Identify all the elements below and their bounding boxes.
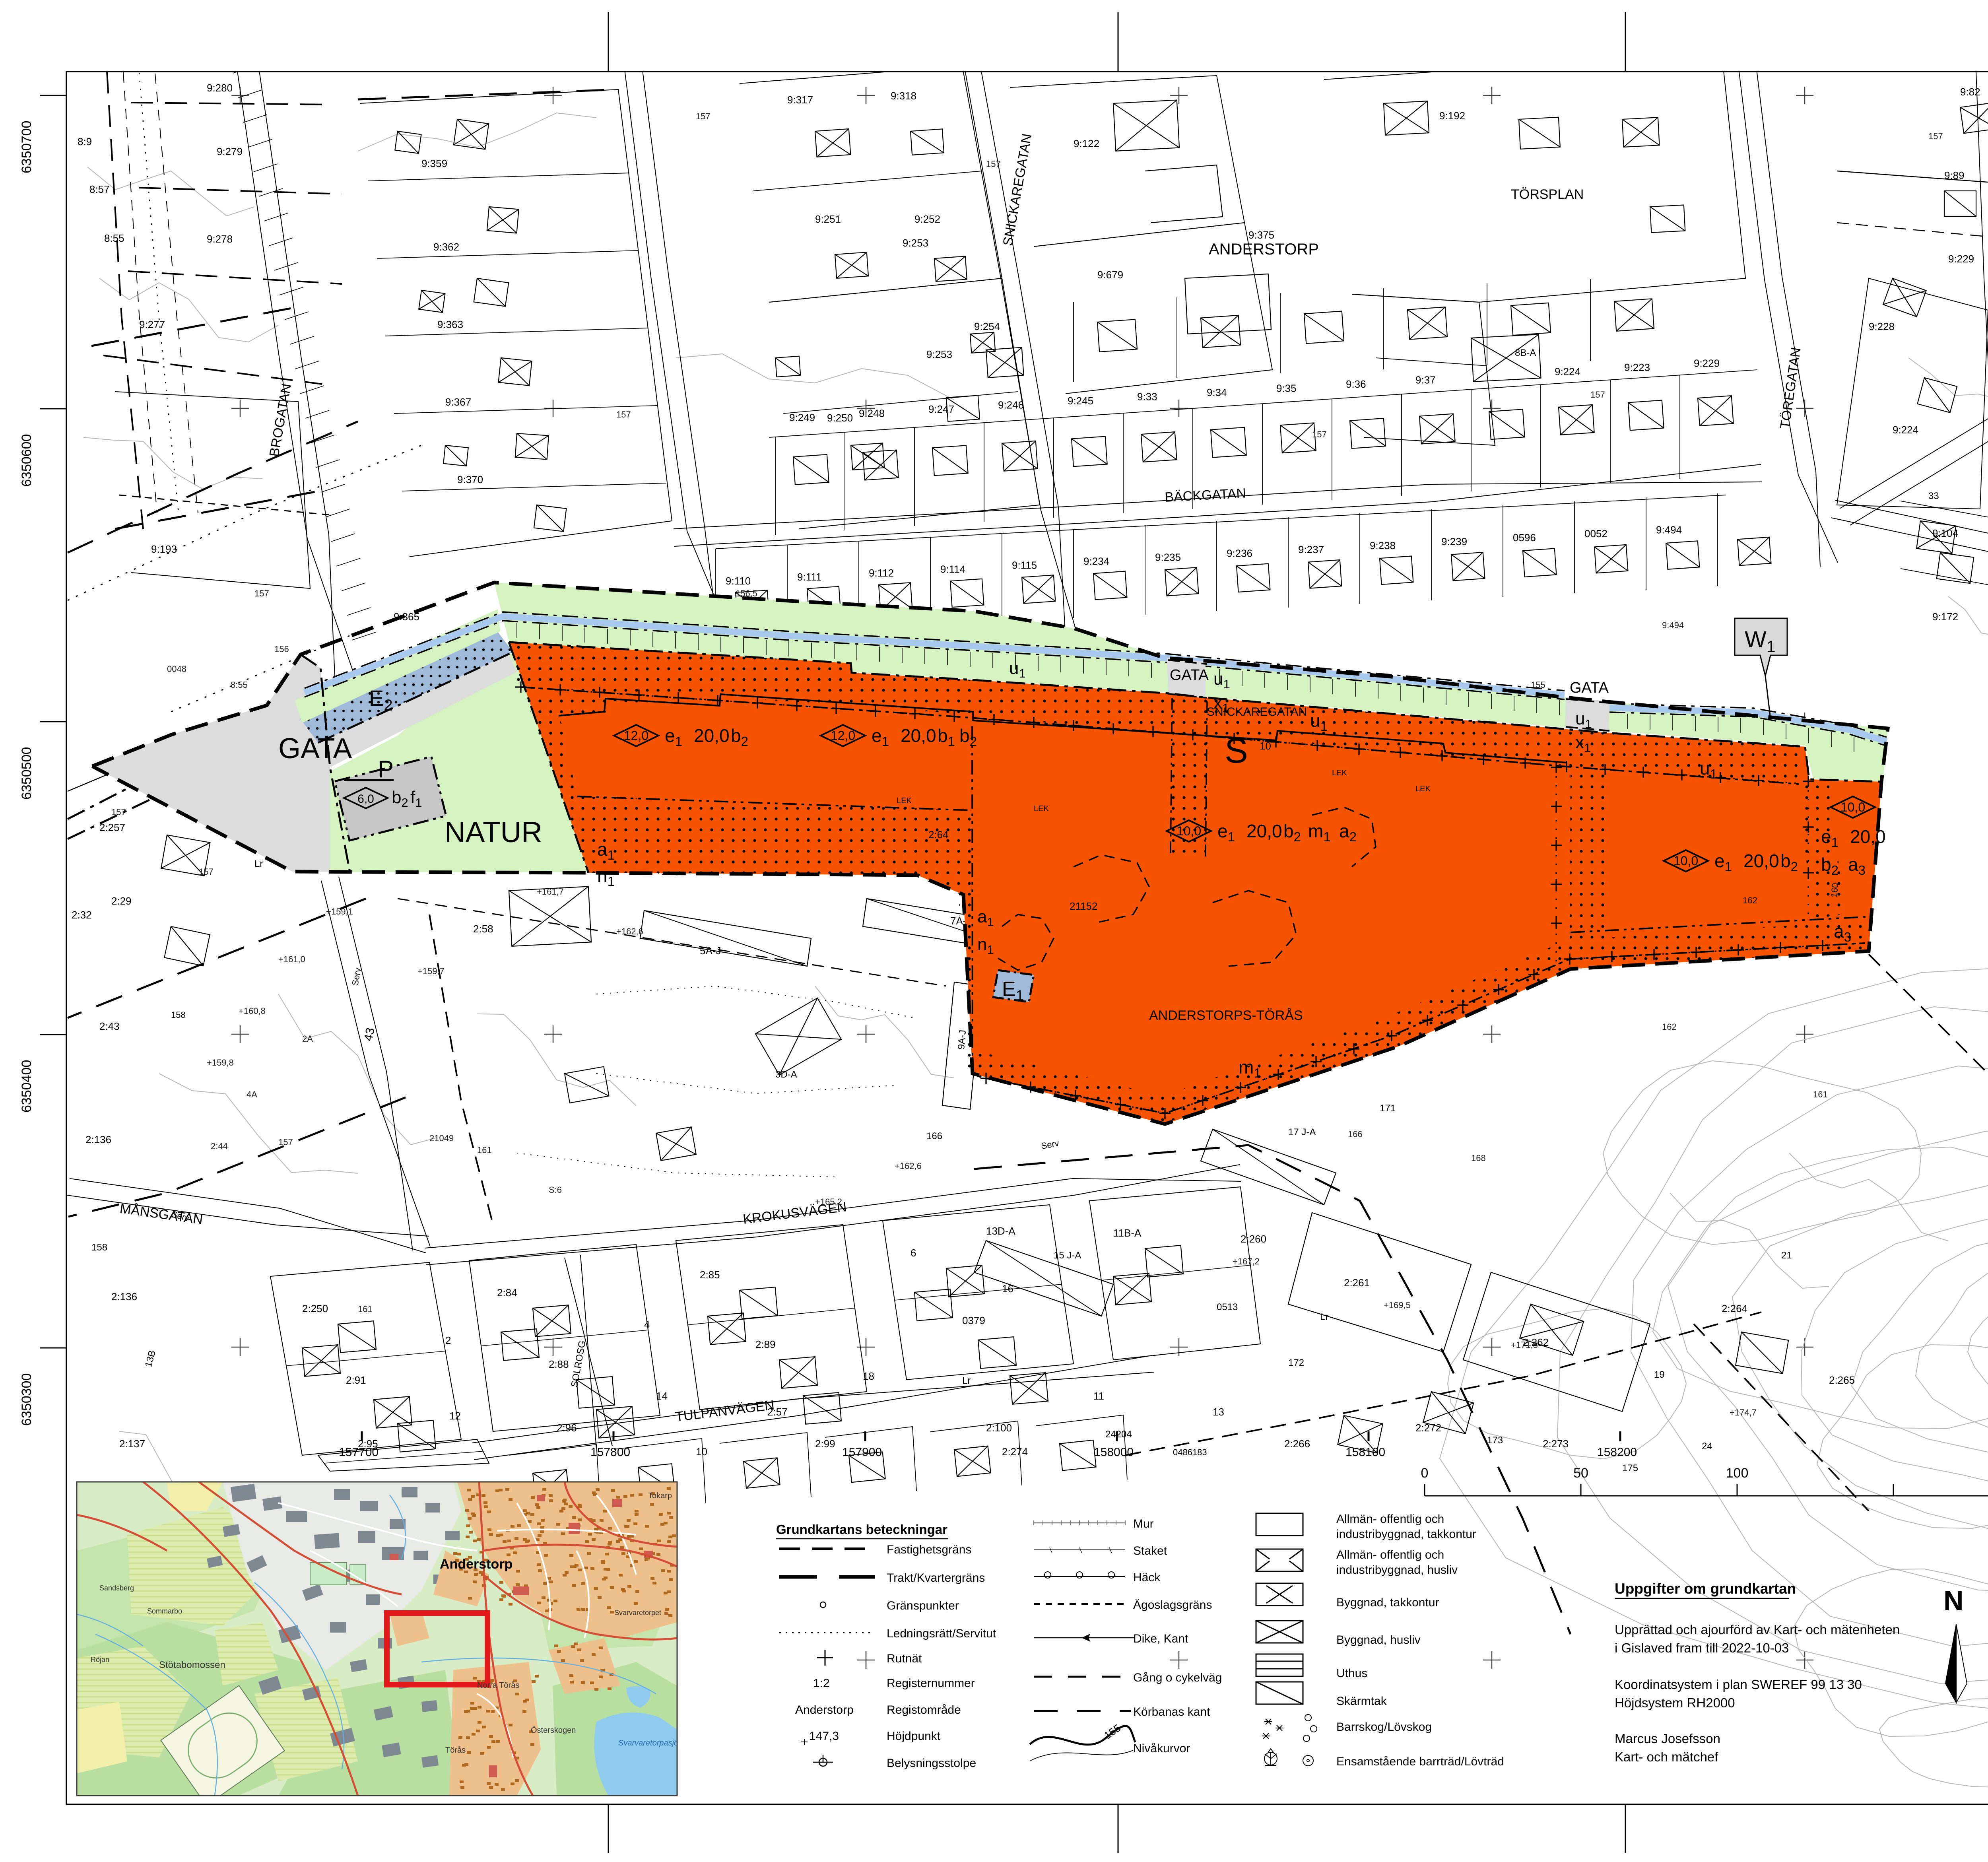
- svg-text:2:91: 2:91: [346, 1374, 366, 1386]
- svg-text:0486183: 0486183: [1173, 1447, 1207, 1457]
- svg-text:NATUR: NATUR: [445, 816, 542, 848]
- svg-text:16: 16: [1002, 1283, 1013, 1295]
- svg-text:10: 10: [696, 1446, 707, 1458]
- svg-text:147,3: 147,3: [809, 1730, 839, 1743]
- svg-text:9:253: 9:253: [903, 237, 928, 249]
- svg-text:6350600: 6350600: [19, 434, 34, 487]
- svg-text:14: 14: [656, 1390, 668, 1402]
- svg-text:2:273: 2:273: [1543, 1438, 1569, 1450]
- svg-text:ANDERSTORP: ANDERSTORP: [1209, 241, 1319, 258]
- svg-text:9:278: 9:278: [207, 233, 233, 245]
- svg-text:Staket: Staket: [1133, 1544, 1167, 1557]
- svg-text:Lr: Lr: [254, 858, 263, 869]
- svg-text:Svarvaretorpasjön: Svarvaretorpasjön: [618, 1739, 683, 1747]
- svg-text:+161,0: +161,0: [278, 954, 305, 964]
- svg-text:2:44: 2:44: [211, 1141, 228, 1151]
- svg-text:157: 157: [278, 1137, 293, 1147]
- svg-text:9:375: 9:375: [1248, 229, 1274, 241]
- svg-text:157: 157: [254, 588, 269, 598]
- svg-text:S:6: S:6: [549, 1185, 562, 1195]
- svg-text:172: 172: [1288, 1357, 1304, 1368]
- svg-text:GATA: GATA: [1170, 667, 1209, 683]
- svg-text:i Gislaved fram till 2022-10-: i Gislaved fram till 2022-10-03: [1615, 1641, 1789, 1655]
- svg-text:0596: 0596: [1513, 532, 1536, 544]
- svg-text:9:36: 9:36: [1346, 378, 1366, 390]
- svg-text:S: S: [1225, 731, 1248, 770]
- svg-text:+161,7: +161,7: [537, 887, 564, 897]
- svg-text:6350700: 6350700: [19, 121, 34, 173]
- svg-text:157: 157: [111, 807, 126, 817]
- svg-text:2:43: 2:43: [99, 1020, 120, 1032]
- svg-text:9:317: 9:317: [787, 94, 813, 106]
- svg-text:+160,8: +160,8: [239, 1006, 266, 1016]
- svg-text:9:33: 9:33: [1137, 391, 1157, 403]
- svg-text:157: 157: [986, 159, 1001, 169]
- svg-text:Upprättad och ajourförd av Kar: Upprättad och ajourförd av Kart- och mät…: [1615, 1622, 1900, 1637]
- svg-text:2:58: 2:58: [473, 923, 493, 935]
- svg-text:+159,1: +159,1: [326, 907, 353, 916]
- svg-text:2:89: 2:89: [755, 1338, 776, 1350]
- svg-text:Koordinatsystem i plan SWEREF: Koordinatsystem i plan SWEREF 99 13 30: [1615, 1677, 1862, 1692]
- svg-text:24204: 24204: [1105, 1429, 1132, 1440]
- svg-text:9:248: 9:248: [859, 408, 885, 419]
- svg-text:Uthus: Uthus: [1336, 1667, 1367, 1680]
- svg-text:Dike, Kant: Dike, Kant: [1133, 1632, 1188, 1645]
- svg-text:157: 157: [616, 410, 631, 419]
- svg-text:6350400: 6350400: [19, 1060, 34, 1113]
- svg-text:6350500: 6350500: [19, 747, 34, 800]
- svg-text:11: 11: [1093, 1390, 1104, 1402]
- svg-text:9:238: 9:238: [1370, 540, 1396, 551]
- svg-text:9:112: 9:112: [869, 567, 894, 579]
- svg-text:9:279: 9:279: [217, 146, 243, 157]
- svg-text:Svarvaretorpet: Svarvaretorpet: [614, 1609, 661, 1617]
- svg-text:9:318: 9:318: [891, 90, 916, 102]
- svg-text:LEK: LEK: [1034, 804, 1049, 813]
- svg-text:Höjdsystem RH2000: Höjdsystem RH2000: [1615, 1695, 1735, 1710]
- svg-text:158100: 158100: [1345, 1446, 1385, 1459]
- svg-text:Sandsberg: Sandsberg: [99, 1584, 134, 1592]
- svg-text:0048: 0048: [167, 664, 186, 674]
- svg-text:9:34: 9:34: [1207, 386, 1227, 398]
- svg-text:Ägoslagsgräns: Ägoslagsgräns: [1133, 1598, 1212, 1612]
- svg-text:9:252: 9:252: [914, 213, 940, 225]
- svg-text:10,0: 10,0: [1840, 800, 1865, 814]
- svg-text:158: 158: [91, 1242, 107, 1253]
- svg-text:Barrskog/Lövskog: Barrskog/Lövskog: [1336, 1720, 1432, 1734]
- svg-text:157: 157: [199, 867, 214, 877]
- svg-text:9:370: 9:370: [457, 474, 483, 485]
- svg-text:LEK: LEK: [1332, 769, 1347, 777]
- svg-text:9:247: 9:247: [928, 403, 954, 415]
- svg-text:157: 157: [696, 111, 711, 121]
- svg-text:GATA: GATA: [1570, 680, 1609, 696]
- svg-text:Ledningsrätt/Servitut: Ledningsrätt/Servitut: [887, 1627, 996, 1640]
- svg-text:Registernummer: Registernummer: [887, 1677, 975, 1690]
- svg-text:8B-A: 8B-A: [1515, 348, 1536, 358]
- svg-text:2:64: 2:64: [928, 829, 949, 841]
- svg-text:2:96: 2:96: [557, 1422, 577, 1434]
- svg-text:9:172: 9:172: [1932, 611, 1958, 623]
- svg-text:+174,7: +174,7: [1730, 1408, 1757, 1417]
- svg-text:20,0: 20,0: [694, 725, 730, 746]
- svg-text:2:136: 2:136: [111, 1291, 137, 1303]
- svg-text:161: 161: [1813, 1089, 1828, 1099]
- svg-text:9:280: 9:280: [207, 82, 233, 94]
- svg-text:9:122: 9:122: [1074, 138, 1099, 150]
- svg-text:Röjan: Röjan: [91, 1656, 109, 1664]
- svg-text:Lr: Lr: [1320, 1312, 1328, 1322]
- svg-text:9:234: 9:234: [1083, 555, 1109, 567]
- svg-text:13D-A: 13D-A: [986, 1225, 1015, 1237]
- svg-text:6350300: 6350300: [19, 1373, 34, 1426]
- svg-text:Uppgifter om grundkartan: Uppgifter om grundkartan: [1615, 1580, 1796, 1597]
- svg-text:157: 157: [1312, 429, 1327, 439]
- svg-text:50: 50: [1573, 1466, 1588, 1481]
- svg-text:9:277: 9:277: [139, 318, 165, 330]
- svg-text:9:35: 9:35: [1276, 382, 1297, 394]
- svg-text:9:224: 9:224: [1893, 424, 1918, 436]
- svg-text:33: 33: [1928, 491, 1939, 501]
- svg-text:173: 173: [1487, 1435, 1503, 1446]
- svg-text:Tokarp: Tokarp: [648, 1491, 672, 1500]
- svg-text:2:274: 2:274: [1002, 1446, 1028, 1458]
- svg-text:2:136: 2:136: [85, 1134, 111, 1146]
- svg-text:Norra Törås: Norra Törås: [477, 1681, 519, 1690]
- svg-text:N: N: [1943, 1585, 1964, 1616]
- svg-text:157800: 157800: [590, 1446, 630, 1459]
- svg-text:21049: 21049: [429, 1133, 454, 1143]
- svg-text:9:114: 9:114: [940, 563, 965, 575]
- svg-text:+165,2: +165,2: [815, 1197, 842, 1207]
- svg-text:2:265: 2:265: [1829, 1374, 1855, 1386]
- svg-text:156: 156: [274, 644, 289, 654]
- svg-text:+171,5: +171,5: [1511, 1340, 1538, 1350]
- svg-text:9:494: 9:494: [1656, 524, 1682, 536]
- svg-text:Mur: Mur: [1133, 1517, 1154, 1530]
- svg-text:Anderstorp: Anderstorp: [440, 1557, 513, 1572]
- svg-text:171: 171: [1380, 1103, 1396, 1114]
- svg-text:9:192: 9:192: [1439, 110, 1465, 122]
- svg-text:9:250: 9:250: [827, 412, 853, 424]
- svg-text:2A: 2A: [302, 1034, 313, 1044]
- svg-text:158200: 158200: [1597, 1446, 1637, 1459]
- svg-text:9:110: 9:110: [726, 575, 751, 587]
- svg-text:160: 160: [1829, 883, 1840, 898]
- svg-text:2:88: 2:88: [549, 1358, 569, 1370]
- svg-text:LEK: LEK: [897, 796, 912, 805]
- svg-text:2:85: 2:85: [700, 1269, 720, 1281]
- svg-text:157: 157: [1590, 390, 1605, 400]
- svg-text:+169,5: +169,5: [1384, 1300, 1411, 1310]
- svg-text:2:260: 2:260: [1241, 1233, 1266, 1245]
- svg-text:166: 166: [1348, 1129, 1363, 1139]
- svg-text:9:193: 9:193: [151, 543, 177, 555]
- svg-text:Österskogen: Österskogen: [531, 1726, 576, 1735]
- svg-text:6: 6: [911, 1247, 916, 1259]
- svg-text:9:235: 9:235: [1155, 551, 1181, 563]
- svg-text:8:55: 8:55: [104, 232, 124, 244]
- svg-text:2:137: 2:137: [119, 1438, 145, 1450]
- svg-text:LEK: LEK: [1415, 784, 1431, 793]
- svg-text:20,0: 20,0: [1850, 826, 1886, 847]
- svg-text:Allmän- offentlig och: Allmän- offentlig och: [1336, 1513, 1444, 1526]
- svg-text:2:250: 2:250: [302, 1303, 328, 1314]
- svg-text:9:228: 9:228: [1869, 320, 1895, 332]
- svg-text:17 J-A: 17 J-A: [1288, 1127, 1316, 1138]
- svg-text:158000: 158000: [1094, 1446, 1134, 1459]
- svg-text:162: 162: [1743, 895, 1757, 905]
- svg-text:12: 12: [449, 1410, 461, 1422]
- svg-text:2: 2: [445, 1334, 451, 1346]
- svg-text:Trakt/Kvartergräns: Trakt/Kvartergräns: [887, 1571, 985, 1584]
- svg-text:SNICKAREGATAN: SNICKAREGATAN: [1207, 705, 1307, 718]
- svg-text:8:57: 8:57: [89, 183, 110, 195]
- svg-text:5A-J: 5A-J: [700, 945, 721, 957]
- svg-text:Fastighetsgräns: Fastighetsgräns: [887, 1543, 971, 1556]
- svg-text:9:229: 9:229: [1948, 253, 1974, 265]
- svg-text:4A: 4A: [247, 1089, 257, 1099]
- svg-text:19: 19: [1654, 1369, 1665, 1380]
- svg-text:9:223: 9:223: [1624, 361, 1650, 373]
- svg-text:2:84: 2:84: [497, 1287, 517, 1299]
- svg-text:8:55: 8:55: [231, 680, 248, 690]
- svg-text:2:257: 2:257: [99, 821, 125, 833]
- svg-text:Anderstorp: Anderstorp: [795, 1703, 854, 1716]
- svg-text:100: 100: [1726, 1466, 1749, 1481]
- svg-text:20,0: 20,0: [1743, 850, 1779, 871]
- svg-text:9:236: 9:236: [1227, 548, 1252, 559]
- svg-text:166: 166: [926, 1131, 942, 1142]
- svg-text:9:239: 9:239: [1441, 536, 1467, 548]
- svg-text:Lr: Lr: [962, 1375, 971, 1386]
- svg-text:2:32: 2:32: [72, 909, 92, 921]
- svg-text:175: 175: [1622, 1463, 1638, 1474]
- svg-text:9:359: 9:359: [421, 157, 447, 169]
- svg-text:0513: 0513: [1217, 1302, 1238, 1313]
- svg-text:0: 0: [1421, 1466, 1429, 1481]
- svg-text:43: 43: [362, 1027, 377, 1043]
- svg-text:Nivåkurvor: Nivåkurvor: [1133, 1742, 1190, 1755]
- svg-text:2:264: 2:264: [1722, 1303, 1747, 1314]
- svg-text:Ensamstående barrträd/Lövträd: Ensamstående barrträd/Lövträd: [1336, 1755, 1504, 1768]
- svg-text:9:245: 9:245: [1068, 395, 1093, 407]
- svg-text:9:679: 9:679: [1097, 269, 1123, 281]
- svg-text:15 J-A: 15 J-A: [1054, 1250, 1081, 1261]
- svg-text:9:254: 9:254: [974, 320, 1000, 332]
- svg-text:9:246: 9:246: [998, 399, 1024, 411]
- svg-text:9:362: 9:362: [433, 241, 459, 253]
- svg-text:20,0: 20,0: [1246, 821, 1282, 841]
- svg-text:Byggnad, takkontur: Byggnad, takkontur: [1336, 1596, 1439, 1609]
- svg-text:161: 161: [358, 1304, 373, 1314]
- svg-text:9:229: 9:229: [1694, 357, 1720, 369]
- svg-text:Allmän- offentlig och: Allmän- offentlig och: [1336, 1548, 1444, 1561]
- svg-text:162: 162: [1662, 1022, 1677, 1032]
- svg-text:10,0: 10,0: [1176, 824, 1201, 838]
- svg-text:+159,8: +159,8: [207, 1058, 234, 1068]
- svg-text:9:253: 9:253: [926, 348, 952, 360]
- svg-text:Grundkartans beteckningar: Grundkartans beteckningar: [776, 1522, 947, 1537]
- svg-text:Registområde: Registområde: [887, 1703, 961, 1716]
- svg-text:2:29: 2:29: [111, 895, 132, 907]
- svg-text:157700: 157700: [339, 1446, 379, 1459]
- svg-text:+162,6: +162,6: [895, 1161, 922, 1171]
- svg-text:8:9: 8:9: [78, 136, 92, 148]
- svg-text:+162,6: +162,6: [616, 926, 643, 936]
- svg-text:9:249: 9:249: [789, 412, 815, 423]
- svg-text:ANDERSTORPS-TÖRÅS: ANDERSTORPS-TÖRÅS: [1149, 1008, 1303, 1023]
- svg-text:+159,7: +159,7: [417, 966, 445, 976]
- svg-text:2:99: 2:99: [815, 1438, 835, 1450]
- svg-text:4: 4: [644, 1318, 650, 1330]
- svg-text:9:367: 9:367: [445, 396, 471, 408]
- svg-text:157900: 157900: [842, 1446, 882, 1459]
- svg-text:2:57: 2:57: [767, 1406, 788, 1418]
- svg-text:0052: 0052: [1584, 528, 1607, 540]
- svg-text:20,0: 20,0: [901, 725, 936, 746]
- svg-text:Skärmtak: Skärmtak: [1336, 1695, 1387, 1708]
- svg-text:Höjdpunkt: Höjdpunkt: [887, 1730, 941, 1743]
- svg-text:Byggnad, husliv: Byggnad, husliv: [1336, 1633, 1421, 1646]
- svg-text:6,0: 6,0: [357, 792, 374, 806]
- svg-text:2:266: 2:266: [1284, 1438, 1310, 1450]
- svg-text:9:115: 9:115: [1012, 559, 1037, 571]
- svg-text:9:494: 9:494: [1662, 620, 1684, 630]
- svg-text:Sommarbo: Sommarbo: [147, 1607, 182, 1615]
- svg-text:P: P: [378, 756, 394, 782]
- svg-text:21152: 21152: [1070, 900, 1097, 912]
- svg-text:161: 161: [477, 1145, 492, 1155]
- svg-text:9:251: 9:251: [815, 213, 841, 225]
- svg-text:Törås: Törås: [445, 1746, 466, 1755]
- svg-text:GATA: GATA: [278, 733, 352, 765]
- svg-text:Gränspunkter: Gränspunkter: [887, 1599, 959, 1612]
- svg-text:10: 10: [1260, 740, 1271, 752]
- svg-text:21: 21: [1781, 1250, 1792, 1261]
- svg-text:2:261: 2:261: [1344, 1277, 1370, 1289]
- svg-text:9:237: 9:237: [1298, 544, 1324, 555]
- svg-text:TÖRSPLAN: TÖRSPLAN: [1511, 187, 1584, 202]
- svg-text:12,0: 12,0: [831, 728, 855, 743]
- svg-text:18: 18: [863, 1370, 874, 1382]
- svg-text:Kart- och mätchef: Kart- och mätchef: [1615, 1749, 1718, 1764]
- svg-text:9:82: 9:82: [1960, 86, 1980, 98]
- svg-text:12,0: 12,0: [624, 728, 648, 743]
- svg-text:+167,2: +167,2: [1233, 1256, 1260, 1266]
- svg-text:Häck: Häck: [1133, 1571, 1161, 1584]
- svg-text:13: 13: [1213, 1406, 1224, 1418]
- svg-text:0379: 0379: [962, 1314, 985, 1326]
- svg-text:industribyggnad, husliv: industribyggnad, husliv: [1336, 1563, 1458, 1577]
- svg-text:Gång o cykelväg: Gång o cykelväg: [1133, 1671, 1222, 1684]
- svg-text:Belysningsstolpe: Belysningsstolpe: [887, 1757, 976, 1770]
- svg-text:158: 158: [171, 1010, 186, 1020]
- svg-text:Rutnät: Rutnät: [887, 1652, 922, 1665]
- svg-text:3D-A: 3D-A: [775, 1069, 797, 1080]
- svg-text:Stötabomossen: Stötabomossen: [159, 1660, 225, 1670]
- svg-text:9:363: 9:363: [437, 318, 463, 330]
- svg-text:9:37: 9:37: [1415, 374, 1436, 386]
- svg-text:Marcus Josefsson: Marcus Josefsson: [1615, 1731, 1720, 1746]
- svg-text:168: 168: [1471, 1153, 1486, 1163]
- svg-text:24: 24: [1702, 1441, 1712, 1452]
- svg-text:industribyggnad, takkontur: industribyggnad, takkontur: [1336, 1528, 1476, 1541]
- svg-text:10,0: 10,0: [1673, 854, 1698, 868]
- svg-text:11B-A: 11B-A: [1113, 1227, 1142, 1239]
- svg-text:9:111: 9:111: [797, 571, 821, 583]
- svg-text:157: 157: [1928, 131, 1943, 141]
- svg-text:1:2: 1:2: [813, 1677, 830, 1690]
- svg-text:9:224: 9:224: [1555, 366, 1580, 378]
- svg-text:Körbanas kant: Körbanas kant: [1133, 1705, 1210, 1718]
